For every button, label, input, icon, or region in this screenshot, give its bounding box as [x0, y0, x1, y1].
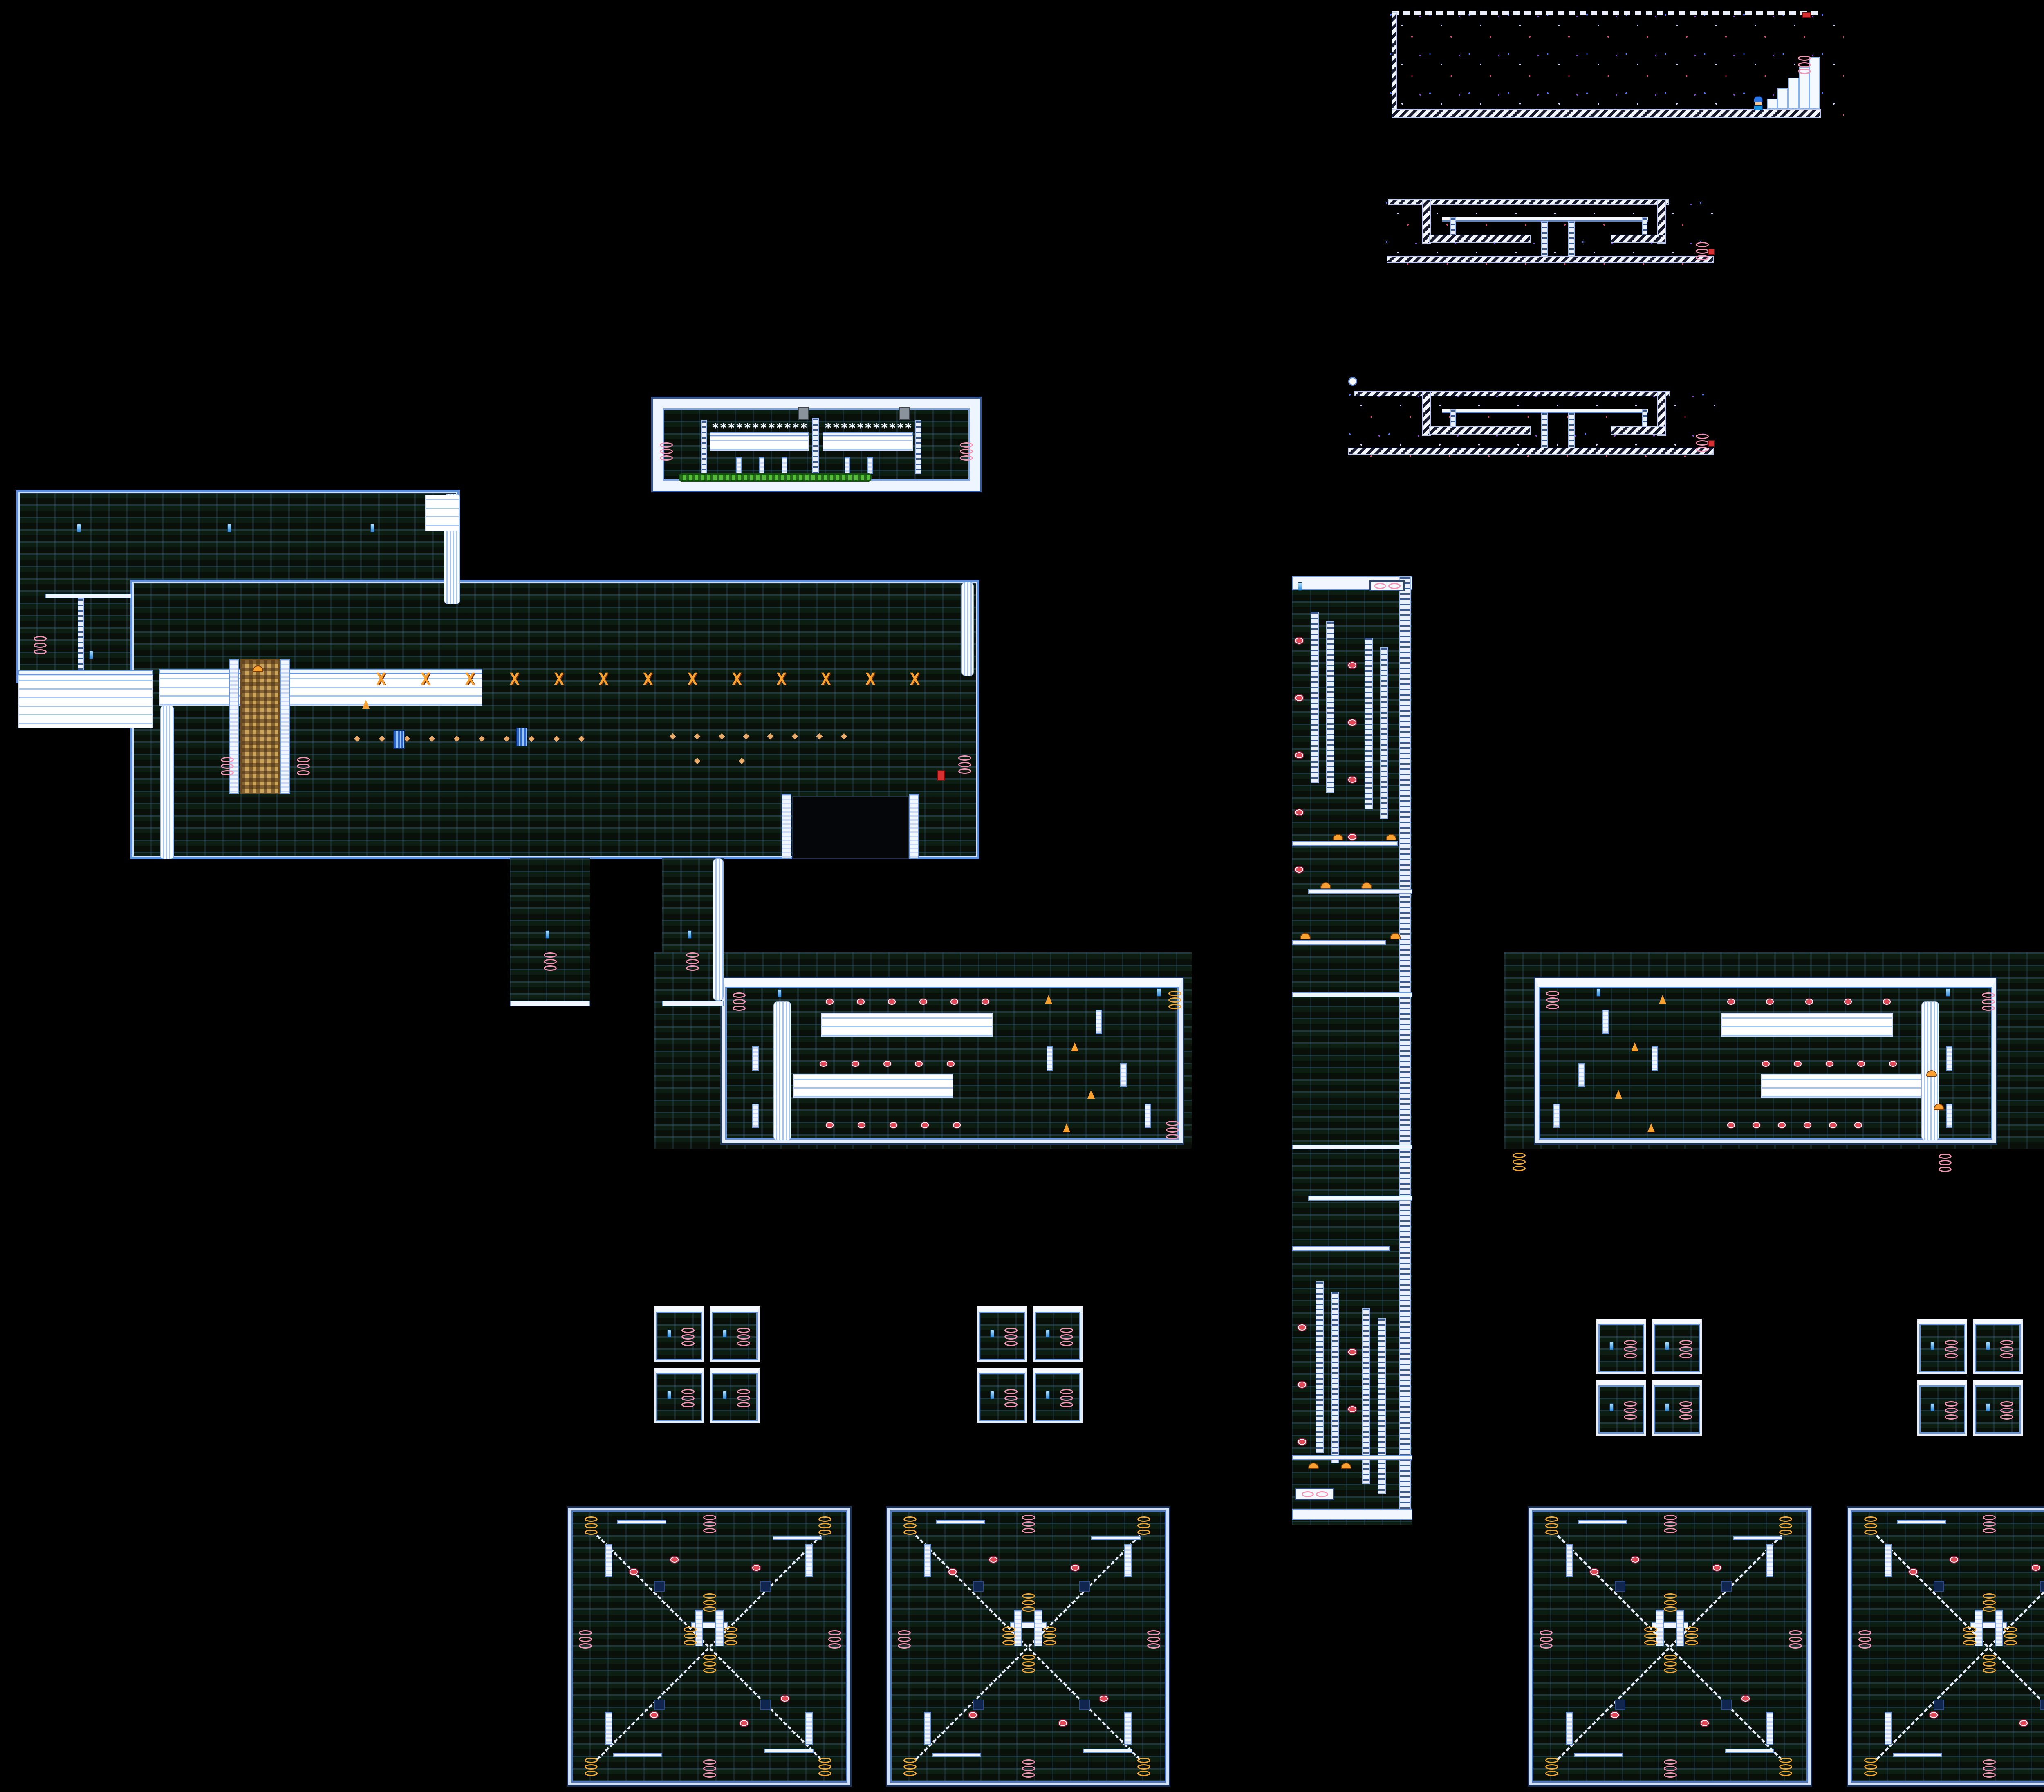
rings-item: [1644, 1627, 1657, 1645]
disc-sprite: [989, 1557, 997, 1563]
tick-item: [845, 457, 850, 474]
cone-item: [362, 700, 370, 709]
rings-item: [1002, 1627, 1015, 1645]
ladder-item: [1311, 612, 1319, 783]
tick-item: [1602, 1010, 1609, 1034]
disc-sprite: [1950, 1557, 1958, 1563]
shelfrow-item: [393, 730, 408, 749]
ladder-item: [1568, 412, 1575, 448]
wavebox-item: [425, 495, 459, 531]
pin-sprite: [1046, 1330, 1050, 1338]
rings-item: [1137, 1758, 1150, 1776]
disc-sprite: [1701, 1720, 1709, 1726]
mini-cluster-cell: [654, 1368, 704, 1423]
disc-sprite: [1295, 638, 1303, 644]
rings-item: [1696, 242, 1709, 260]
xcross-item: [912, 1532, 1145, 1761]
tick-item: [1120, 1063, 1127, 1087]
rings-item: [1545, 1758, 1558, 1776]
navybox-item: [1079, 1700, 1090, 1710]
redbox-item: [1708, 440, 1715, 447]
ladder-item: [1380, 647, 1388, 819]
blackbox-item: [792, 796, 909, 859]
rings-item: [1696, 434, 1709, 452]
ladder-item: [1378, 1318, 1386, 1494]
mini-cluster-cell: [654, 1306, 704, 1362]
whitebar-item: [18, 670, 153, 675]
whitebar-item: [932, 1753, 981, 1757]
tick-item: [605, 1712, 612, 1745]
rings-item: [1864, 1758, 1877, 1776]
ringbar-item: [1369, 580, 1405, 591]
tick-item: [909, 794, 919, 859]
ladder-item: [1316, 1281, 1324, 1453]
xcross-item: [1553, 1532, 1786, 1761]
disc-sprite: [1590, 1569, 1598, 1575]
whitebar-item: [1292, 992, 1412, 997]
whitebar-item: [1725, 1749, 1774, 1753]
disc-sprite: [1631, 1557, 1639, 1563]
mini-cluster-cell: [1033, 1306, 1083, 1362]
discrow-sprite: [1727, 1121, 1862, 1129]
rings-item: [958, 755, 971, 774]
wavebox-item: [793, 1074, 953, 1098]
pin-sprite: [1986, 1403, 1990, 1411]
rings-item: [1137, 1516, 1150, 1535]
rings-item: [1945, 1401, 1958, 1420]
whitebar-item: [1292, 1509, 1412, 1520]
pin-sprite: [688, 930, 692, 939]
waterfall-item: [160, 706, 174, 859]
pin-sprite: [667, 1330, 671, 1338]
waterfall-item: [773, 1001, 791, 1140]
rings-item: [737, 1328, 750, 1346]
disc-sprite: [1298, 1439, 1306, 1445]
disc-sprite: [1348, 1406, 1356, 1412]
orb-item: [1348, 377, 1357, 386]
ladder-item: [1568, 221, 1575, 257]
tick-item: [1566, 1544, 1573, 1577]
disc-sprite: [1071, 1565, 1079, 1571]
shelfrow-item: [516, 728, 531, 746]
pin-sprite: [1609, 1403, 1614, 1411]
rings-item: [1166, 1121, 1179, 1139]
navybox-item: [1721, 1581, 1732, 1592]
rings-item: [733, 992, 746, 1011]
pin-sprite: [723, 1330, 727, 1338]
hatch-h-item: [1354, 391, 1670, 396]
mini-cluster-cell: [977, 1306, 1027, 1362]
navybox-item: [1934, 1700, 1944, 1710]
rings-item: [585, 1758, 598, 1776]
whitebar-item: [1897, 1520, 1946, 1524]
pin-sprite: [723, 1391, 727, 1399]
dotrow-item: [355, 735, 584, 742]
ladder-item: [1365, 638, 1373, 809]
rings-item: [703, 1759, 716, 1778]
waterfall-item: [961, 582, 974, 676]
cone-item: [1063, 1123, 1070, 1132]
rings-item: [1060, 1328, 1073, 1346]
rings-item: [2004, 1627, 2017, 1645]
rings-item: [1004, 1389, 1018, 1407]
navybox-item: [654, 1581, 665, 1592]
tick-item: [1096, 1010, 1102, 1034]
disc-sprite: [1909, 1569, 1917, 1575]
rings-item: [1983, 1515, 1996, 1533]
rings-item: [1864, 1516, 1877, 1535]
wavebox-item: [823, 436, 913, 451]
hatch-v-item: [1392, 12, 1397, 114]
dash-h-item: [1392, 11, 1820, 15]
ladder-item: [812, 418, 819, 478]
ladder-item: [1450, 409, 1456, 428]
tick-item: [1885, 1544, 1892, 1577]
pin-sprite: [1046, 1391, 1050, 1399]
disc-sprite: [1741, 1696, 1750, 1702]
ladder-item: [1331, 1292, 1339, 1463]
whitebar-item: [1091, 1536, 1141, 1540]
pin-sprite: [1298, 582, 1302, 591]
waterfall-item: [713, 858, 724, 1001]
whitebar-item: [1292, 841, 1398, 846]
navybox-item: [1079, 1581, 1090, 1592]
rings-item: [818, 1758, 831, 1776]
cone-item: [1631, 1042, 1638, 1051]
disc-sprite: [1295, 752, 1303, 758]
disc-sprite: [752, 1565, 760, 1571]
rings-item: [1545, 1516, 1558, 1535]
tick-item: [805, 1544, 813, 1577]
navybox-item: [1934, 1581, 1944, 1592]
rings-item: [221, 757, 234, 775]
pin-sprite: [667, 1391, 671, 1399]
wavebox-item: [821, 1013, 993, 1037]
disc-sprite: [670, 1557, 679, 1563]
rings-item: [1983, 1593, 1996, 1612]
xcross-item: [593, 1532, 826, 1761]
whitebar-item: [1292, 1145, 1412, 1149]
ladder-item: [1642, 409, 1647, 428]
tick-item: [805, 1712, 813, 1745]
tick-item: [1578, 1063, 1585, 1087]
pin-sprite: [370, 524, 374, 532]
cone-item: [1615, 1090, 1622, 1099]
rings-item: [660, 442, 673, 461]
tick-item: [752, 1046, 759, 1071]
discrow-sprite: [820, 1060, 955, 1068]
rings-item: [898, 1630, 911, 1649]
pin-sprite: [990, 1330, 994, 1338]
whitebar-item: [1893, 1753, 1942, 1757]
whitebar-item: [764, 1749, 814, 1753]
rings-item: [585, 1516, 598, 1535]
cone-item: [1087, 1090, 1095, 1099]
rings-item: [1043, 1627, 1056, 1645]
tick-item: [1145, 1104, 1151, 1128]
redbox-item: [1802, 12, 1811, 18]
rings-item: [1022, 1593, 1035, 1612]
navybox-item: [1721, 1700, 1732, 1710]
disc-sprite: [1059, 1720, 1067, 1726]
tick-item: [1566, 1712, 1573, 1745]
hatch-h-item: [1611, 426, 1666, 435]
disc-sprite: [948, 1569, 957, 1575]
rings-item: [1983, 1759, 1996, 1778]
rings-item: [1513, 1153, 1526, 1171]
disc-sprite: [1348, 719, 1356, 726]
tick-item: [736, 457, 742, 474]
wavebox-item: [18, 675, 153, 728]
rings-item: [737, 1389, 750, 1407]
ladder-item: [1642, 217, 1647, 236]
discrow-sprite: [1727, 997, 1891, 1006]
tick-item: [782, 457, 787, 474]
mini-cluster-cell: [1917, 1380, 1967, 1436]
whitebar-item: [1733, 1536, 1782, 1540]
rings-item: [544, 952, 557, 971]
rings-item: [960, 442, 973, 461]
disc-sprite: [1295, 809, 1303, 815]
pin-sprite: [77, 524, 81, 532]
tick-item: [1652, 1046, 1658, 1071]
tick-item: [280, 659, 290, 794]
rings-item: [818, 1516, 831, 1535]
graybox-item: [798, 407, 809, 420]
rings-item: [1022, 1515, 1035, 1533]
pin-sprite: [990, 1391, 994, 1399]
rings-item: [903, 1758, 917, 1776]
spikes-item: ***********: [825, 423, 912, 433]
disc-sprite: [1298, 1382, 1306, 1388]
rings-item: [1798, 56, 1811, 74]
rings-item: [1540, 1630, 1553, 1649]
hatch-h-item: [1429, 426, 1531, 435]
ladder-item: [915, 420, 921, 474]
door-item: [240, 659, 280, 794]
tick-item: [1995, 1610, 2003, 1646]
ringbar-item: [1295, 1488, 1334, 1500]
mini-cluster-cell: [1652, 1319, 1702, 1374]
mini-cluster-cell: [977, 1368, 1027, 1423]
whitebar-item: [936, 1520, 985, 1524]
rings-item: [1004, 1328, 1018, 1346]
navybox-item: [973, 1581, 984, 1592]
discrow-sprite: [826, 1121, 961, 1129]
tick-item: [759, 457, 764, 474]
rings-item: [34, 636, 47, 654]
disc-sprite: [630, 1569, 638, 1575]
tick-item: [1124, 1712, 1132, 1745]
hanging-column-1: [510, 858, 590, 1006]
whitebar-item: [823, 432, 913, 436]
ladder-item: [1399, 576, 1411, 1512]
xrow-item: XXXXXXXXXXXXX: [376, 669, 920, 690]
hatch-h-item: [1387, 256, 1714, 263]
tick-item: [924, 1544, 931, 1577]
disc-sprite: [1930, 1712, 1938, 1718]
navybox-item: [2040, 1581, 2044, 1592]
rings-item: [1624, 1401, 1637, 1420]
conveyor-item: [679, 473, 872, 482]
tick-item: [1885, 1712, 1892, 1745]
rings-item: [686, 952, 699, 971]
tall-center-column: [1292, 576, 1412, 1525]
rings-item: [703, 1655, 716, 1673]
rings-item: [1983, 1655, 1996, 1673]
navybox-item: [760, 1700, 771, 1710]
discrow-sprite: [1762, 1060, 1897, 1068]
hatch-h-item: [1348, 448, 1714, 455]
disc-sprite: [1611, 1712, 1619, 1718]
rings-item: [724, 1627, 737, 1645]
disc-sprite: [1348, 777, 1356, 783]
navybox-item: [760, 1581, 771, 1592]
rings-item: [1022, 1759, 1035, 1778]
rings-item: [1147, 1630, 1160, 1649]
rings-item: [1982, 992, 1995, 1011]
pin-sprite: [1596, 988, 1600, 997]
ladder-item: [1326, 621, 1334, 793]
tick-item: [752, 1104, 759, 1128]
ladder-item: [1541, 412, 1548, 448]
rings-item: [1685, 1627, 1698, 1645]
navybox-item: [1615, 1581, 1625, 1592]
graybox-item: [899, 407, 910, 420]
spikes-item: ************: [712, 423, 807, 433]
disc-sprite: [1713, 1565, 1721, 1571]
ladder-item: [1541, 221, 1548, 257]
tick-item: [1766, 1544, 1773, 1577]
mini-cluster-cell: [1973, 1380, 2023, 1436]
cone-item: [1647, 1123, 1655, 1132]
tick-item: [1124, 1544, 1132, 1577]
disc-sprite: [2019, 1720, 2028, 1726]
disc-sprite: [1348, 834, 1356, 840]
disc-sprite: [1348, 662, 1356, 668]
tick-item: [1553, 1104, 1560, 1128]
tick-item: [1676, 1610, 1684, 1646]
rings-item: [1168, 991, 1181, 1009]
dotrow-item: [670, 732, 846, 740]
rings-item: [1060, 1389, 1073, 1407]
tick-item: [1946, 1046, 1952, 1071]
navybox-item: [2040, 1700, 2044, 1710]
disc-sprite: [1348, 1349, 1356, 1355]
cone-item: [1659, 995, 1666, 1004]
disc-sprite: [650, 1712, 658, 1718]
pin-sprite: [1665, 1342, 1669, 1350]
whitebar-item: [1292, 940, 1386, 945]
pin-sprite: [1946, 988, 1950, 997]
pin-sprite: [545, 930, 549, 939]
redbox-item: [937, 770, 945, 781]
rings-item: [681, 1328, 695, 1346]
wavebox-item: [1721, 1013, 1893, 1037]
megaman-sprite: [1754, 96, 1763, 109]
mini-cluster-cell: [1652, 1380, 1702, 1436]
rings-item: [703, 1515, 716, 1533]
tick-item: [782, 794, 791, 859]
rings-item: [1679, 1401, 1692, 1420]
cone-item: [1071, 1042, 1078, 1051]
navybox-item: [973, 1700, 984, 1710]
navybox-item: [654, 1700, 665, 1710]
wavebox-item: [710, 436, 809, 451]
pin-sprite: [1930, 1342, 1934, 1350]
ladder-item: [1450, 217, 1456, 236]
mini-cluster-cell: [1033, 1368, 1083, 1423]
dotrow-item: [695, 757, 744, 764]
rings-item: [1963, 1627, 1976, 1645]
rings-item: [1679, 1340, 1692, 1358]
pin-sprite: [1665, 1403, 1669, 1411]
world-map: TO BE CONTiNUE SHOP GIVE UP ************…: [0, 0, 2044, 1792]
wavebox-item: [1761, 1074, 1921, 1098]
disc-sprite: [1295, 867, 1303, 873]
tick-item: [1034, 1610, 1042, 1646]
redbox-item: [1708, 249, 1715, 255]
pin-sprite: [1609, 1342, 1614, 1350]
rings-item: [2000, 1401, 2013, 1420]
rings-item: [1664, 1593, 1677, 1612]
tick-item: [715, 1610, 724, 1646]
rings-item: [828, 1630, 841, 1649]
rings-item: [1664, 1655, 1677, 1673]
whitebar-item: [617, 1520, 666, 1524]
rings-item: [703, 1593, 716, 1612]
rings-item: [1022, 1655, 1035, 1673]
navybox-item: [1615, 1700, 1625, 1710]
tick-item: [605, 1544, 612, 1577]
tick-item: [924, 1712, 931, 1745]
rings-item: [1664, 1759, 1677, 1778]
whitebar-item: [1578, 1520, 1627, 1524]
rings-item: [1546, 991, 1559, 1009]
rings-item: [1939, 1154, 1952, 1172]
mini-cluster-cell: [710, 1368, 760, 1423]
disc-sprite: [1100, 1696, 1108, 1702]
rings-item: [1664, 1515, 1677, 1533]
rings-item: [1858, 1630, 1871, 1649]
cone-item: [1045, 995, 1052, 1004]
disc-sprite: [781, 1696, 789, 1702]
whitebar-item: [1308, 889, 1412, 894]
rings-item: [1779, 1516, 1792, 1535]
whitebar-item: [1308, 1196, 1412, 1201]
rings-item: [684, 1627, 697, 1645]
mini-cluster-cell: [1973, 1319, 2023, 1374]
rings-item: [2000, 1340, 2013, 1358]
pin-sprite: [1986, 1342, 1990, 1350]
xcross-item: [1872, 1532, 2044, 1761]
pin-sprite: [89, 651, 93, 659]
whitebar-item: [773, 1536, 822, 1540]
disc-sprite: [1298, 1324, 1306, 1331]
whitebar-item: [1292, 1246, 1390, 1251]
mini-cluster-cell: [1596, 1319, 1646, 1374]
disc-sprite: [1295, 695, 1303, 701]
rings-item: [681, 1389, 695, 1407]
whitebar-item: [662, 1001, 724, 1006]
tick-item: [1946, 1104, 1952, 1128]
tick-item: [1047, 1046, 1053, 1071]
whitebar-item: [510, 1001, 590, 1006]
rings-item: [579, 1630, 592, 1649]
whitebar-item: [45, 594, 132, 598]
pin-sprite: [778, 989, 782, 997]
pin-sprite: [1930, 1403, 1934, 1411]
